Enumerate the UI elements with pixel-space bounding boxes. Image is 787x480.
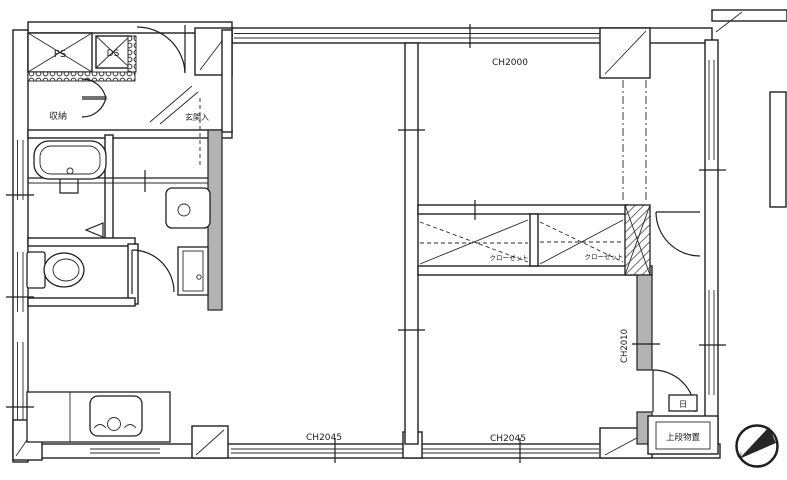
upper-storage-label: 上段物置 — [666, 432, 701, 443]
toilet-top-wall — [28, 238, 135, 246]
closet2-label: クローゼット — [585, 252, 624, 261]
entrance-label: 玄関入 — [185, 112, 209, 122]
wash-basin — [166, 188, 210, 228]
kitchen — [27, 392, 170, 442]
toilet-right-wall — [128, 244, 138, 304]
toilet-room — [27, 250, 174, 294]
neighbor-wall-right — [770, 92, 786, 207]
closet-bottom-wall — [418, 266, 652, 275]
center-wall — [405, 43, 418, 444]
storage-door-arc — [82, 79, 106, 99]
entrance-door-arc — [137, 27, 185, 73]
ch2000-label: CH2000 — [492, 58, 528, 68]
compass: N — [737, 426, 778, 467]
ch2045-left-label: CH2045 — [306, 433, 342, 443]
ps-label: PS — [54, 49, 66, 60]
toilet-bowl — [44, 253, 84, 287]
ch2010-label: CH2010 — [620, 329, 630, 363]
closet1-label: クローゼット — [490, 253, 529, 262]
right-wall — [705, 40, 718, 444]
bath-right-wall — [105, 135, 113, 243]
storage-door-arc — [82, 97, 106, 117]
meter-box-label: 日 — [679, 400, 687, 409]
toilet-tank — [27, 252, 45, 288]
washing-machine — [178, 247, 208, 295]
bath-step — [60, 179, 78, 193]
compass-north-label: N — [737, 451, 742, 459]
corridor-wall-upper — [637, 275, 652, 370]
closet-divider — [530, 214, 538, 266]
bathtub — [34, 141, 106, 179]
storage-label: 収納 — [49, 110, 67, 122]
ds-label: DS — [107, 49, 120, 59]
adjacent-structures — [712, 10, 787, 207]
toilet-bottom-wall — [28, 298, 135, 306]
neighbor-wall-top — [712, 10, 787, 21]
partitions — [28, 30, 652, 444]
annotations: CH2000 CH2045 CH2045 CH2010 — [306, 58, 630, 444]
left-wall — [13, 30, 28, 462]
bath-door-symbol — [86, 223, 103, 237]
floor-plan-drawing: PS DS 玄関入 収納 — [0, 0, 787, 480]
insulation-strip — [28, 72, 135, 81]
bathroom — [34, 141, 106, 237]
bedroom1-door-arc — [656, 212, 700, 256]
closet-top-wall — [418, 205, 628, 214]
service-shafts: PS DS — [28, 33, 136, 81]
closets: クローゼット クローゼット — [420, 220, 624, 264]
insulation-strip — [128, 36, 136, 72]
floor-plan: PS DS 玄関入 収納 — [0, 0, 787, 480]
wet-area-top-wall — [28, 130, 232, 138]
entry-side-wall — [222, 30, 232, 132]
